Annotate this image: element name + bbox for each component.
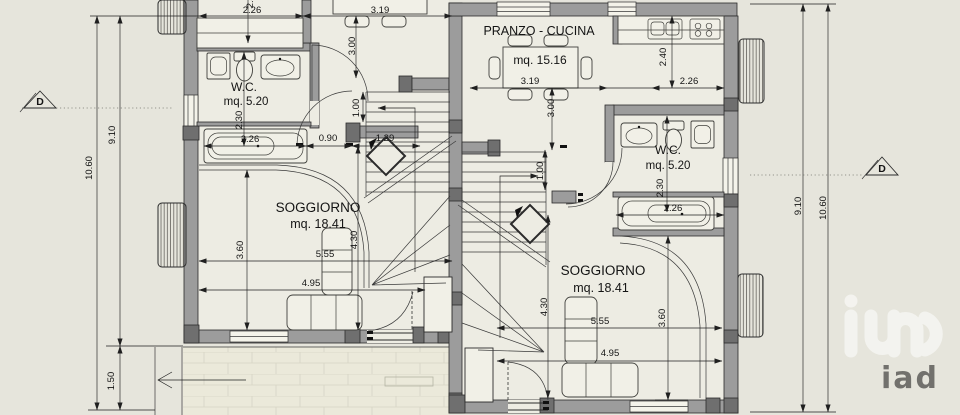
floor-plan: D D 2.26 3.19 2.40 3.00 1.00 W.C. mq. 5.… bbox=[0, 0, 960, 415]
dim-left-kitchen-depth: 2.40 bbox=[245, 0, 256, 8]
sink-icon bbox=[621, 123, 657, 147]
washer-icon bbox=[207, 53, 230, 79]
dim-right-hall-height: 1.00 bbox=[535, 162, 546, 181]
sink-icon bbox=[261, 55, 300, 79]
dim-right-table-width: 3.19 bbox=[521, 76, 540, 87]
dim-left-sogg-depth: 3.60 bbox=[235, 241, 246, 260]
radiator-icon bbox=[739, 39, 764, 103]
left-patio bbox=[183, 347, 449, 415]
dim-right-table-depth: 3.00 bbox=[546, 99, 557, 118]
dim-right-bath-width: 2.26 bbox=[664, 203, 683, 214]
label-right-soggiorno: SOGGIORNO bbox=[561, 263, 646, 278]
window-right-wall bbox=[723, 158, 738, 194]
left-patio-door-opening bbox=[367, 330, 413, 343]
label-left-wc: W.C. bbox=[231, 80, 257, 94]
section-letter: D bbox=[36, 96, 44, 108]
dim-left-table-depth: 3.00 bbox=[347, 37, 358, 56]
dim-right-kitchen-width: 2.26 bbox=[680, 76, 699, 87]
dim-right-kitchen-depth: 2.40 bbox=[658, 48, 669, 67]
section-letter: D bbox=[878, 163, 886, 175]
chair-icon bbox=[544, 89, 568, 100]
right-kitchen-counter bbox=[618, 16, 724, 44]
label-right-pranzo-area: mq. 15.16 bbox=[513, 53, 567, 67]
dim-left-hall-height: 1.00 bbox=[351, 99, 362, 118]
dim-right-sogg-width-a: 5.55 bbox=[591, 316, 610, 327]
party-wall bbox=[449, 3, 462, 413]
dim-left-total-outer: 10.60 bbox=[84, 156, 95, 180]
label-right-soggiorno-area: mq. 18.41 bbox=[573, 281, 629, 295]
label-left-soggiorno: SOGGIORNO bbox=[276, 200, 361, 215]
label-right-wc-area: mq. 5.20 bbox=[646, 160, 691, 172]
dim-right-sogg-width-b: 4.95 bbox=[601, 348, 620, 359]
window-right-top-2 bbox=[608, 2, 636, 16]
dim-left-path: 1.50 bbox=[106, 372, 117, 391]
chair-icon bbox=[581, 57, 592, 79]
dim-right-total-inner: 9.10 bbox=[793, 197, 804, 216]
left-kitchen-counter bbox=[197, 18, 303, 48]
chair-icon bbox=[382, 16, 406, 27]
radiator-icon bbox=[738, 274, 763, 337]
dim-left-hall-width: 0.90 bbox=[319, 133, 338, 144]
dim-left-stair-opening: 1.29 bbox=[376, 133, 395, 144]
label-left-soggiorno-area: mq. 18.41 bbox=[290, 217, 346, 231]
label-left-wc-area: mq. 5.20 bbox=[224, 96, 269, 108]
dim-left-sogg-width-a: 5.55 bbox=[316, 249, 335, 260]
window-left-wall bbox=[184, 95, 198, 129]
dim-left-wc-depth: 2.30 bbox=[234, 111, 245, 130]
label-right-wc: W.C. bbox=[655, 143, 681, 157]
dim-right-sogg-depth: 3.60 bbox=[657, 309, 668, 328]
dim-right-total-outer: 10.60 bbox=[818, 196, 829, 220]
dim-left-sogg-height: 4.30 bbox=[349, 231, 360, 250]
dim-left-total-inner: 9.10 bbox=[107, 126, 118, 145]
dim-right-sogg-height: 4.30 bbox=[539, 298, 550, 317]
dim-left-table-width: 3.19 bbox=[371, 5, 390, 16]
iad-logo-text: iad bbox=[881, 361, 939, 396]
label-right-pranzo: PRANZO - CUCINA bbox=[483, 24, 595, 38]
chair-icon bbox=[508, 89, 532, 100]
chair-icon bbox=[489, 57, 500, 79]
chair-icon bbox=[345, 16, 369, 27]
bidet-icon bbox=[691, 121, 714, 148]
window-right-top bbox=[497, 2, 550, 16]
dim-left-bath-width: 2.26 bbox=[241, 134, 260, 145]
radiator-icon bbox=[158, 203, 186, 267]
dim-right-wc-depth: 2.30 bbox=[655, 179, 666, 198]
radiator-icon bbox=[158, 0, 186, 34]
dim-left-sogg-width-b: 4.95 bbox=[302, 278, 321, 289]
